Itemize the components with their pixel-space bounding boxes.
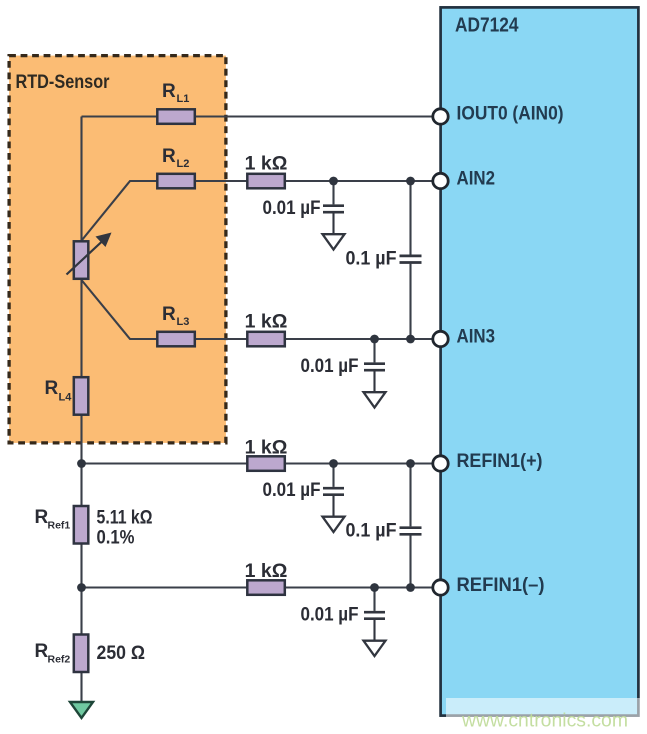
svg-text:0.01 µF: 0.01 µF (301, 604, 359, 626)
svg-text:RTD-Sensor: RTD-Sensor (16, 71, 110, 93)
svg-text:Ref2: Ref2 (48, 654, 71, 666)
svg-text:0.01 µF: 0.01 µF (301, 355, 359, 377)
svg-text:0.01 µF: 0.01 µF (263, 197, 321, 219)
svg-text:R: R (162, 146, 176, 167)
svg-text:250 Ω: 250 Ω (97, 642, 146, 664)
svg-text:R: R (162, 304, 176, 325)
svg-text:L1: L1 (177, 93, 190, 105)
svg-text:AD7124: AD7124 (455, 15, 519, 37)
svg-text:1 kΩ: 1 kΩ (245, 153, 288, 175)
svg-text:R: R (162, 81, 176, 102)
svg-text:0.1%: 0.1% (97, 527, 135, 549)
svg-text:REFIN1(–): REFIN1(–) (457, 574, 545, 596)
svg-text:L2: L2 (177, 158, 190, 170)
svg-text:1 kΩ: 1 kΩ (245, 560, 288, 582)
svg-text:5.11 kΩ: 5.11 kΩ (97, 507, 153, 529)
svg-text:L3: L3 (177, 316, 190, 328)
svg-text:AIN3: AIN3 (457, 326, 496, 348)
svg-text:AIN2: AIN2 (457, 168, 496, 190)
svg-text:IOUT0 (AIN0): IOUT0 (AIN0) (457, 103, 564, 125)
svg-text:R: R (45, 378, 59, 399)
svg-text:L4: L4 (59, 392, 73, 404)
svg-text:Ref1: Ref1 (48, 520, 71, 532)
svg-text:R: R (35, 641, 49, 662)
svg-text:www.cntronics.com: www.cntronics.com (461, 710, 628, 732)
svg-text:1 kΩ: 1 kΩ (245, 311, 288, 333)
svg-text:0.01 µF: 0.01 µF (263, 479, 321, 501)
svg-text:0.1 µF: 0.1 µF (346, 248, 397, 270)
svg-text:R: R (35, 507, 49, 528)
svg-text:1 kΩ: 1 kΩ (245, 437, 288, 459)
svg-text:REFIN1(+): REFIN1(+) (457, 450, 543, 472)
svg-text:0.1 µF: 0.1 µF (346, 520, 397, 542)
